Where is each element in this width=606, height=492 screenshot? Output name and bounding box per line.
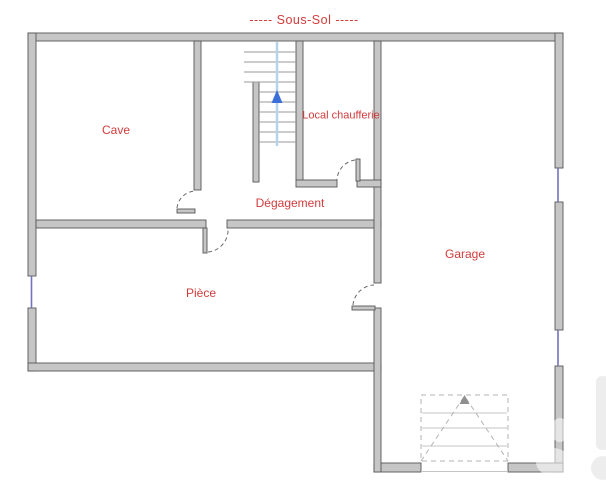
wall-corridor-bottom xyxy=(227,220,381,228)
room-label-degagement: Dégagement xyxy=(256,197,325,209)
floorplan-sous-sol: ----- Sous-Sol ----- Cave Local chauffer… xyxy=(0,0,606,492)
room-label-garage: Garage xyxy=(445,248,485,260)
door-chaufferie xyxy=(337,159,360,181)
wall-stair-side xyxy=(253,82,259,182)
room-label-chaufferie: Local chaufferie xyxy=(302,111,379,122)
room-label-cave: Cave xyxy=(102,124,130,136)
wall-bottom-left xyxy=(28,363,381,371)
door-leaf-chaufferie xyxy=(356,159,360,181)
wall-cave-bottom xyxy=(36,220,206,228)
door-arc-cave xyxy=(177,191,196,208)
garage-sectional-door xyxy=(421,395,508,472)
wall-left-lower xyxy=(28,308,36,371)
door-arc-piece-garage xyxy=(353,285,374,305)
watermark xyxy=(536,376,606,480)
door-leaf-cave xyxy=(177,209,195,213)
door-leaf-piece-garage xyxy=(352,306,375,310)
garage-door-apex-icon xyxy=(460,395,470,404)
door-piece-garage xyxy=(352,285,375,310)
door-leaf-degagement-piece xyxy=(203,228,207,253)
wall-top xyxy=(28,33,563,41)
door-arc-chaufferie xyxy=(337,160,355,180)
wall-garage-west-lower xyxy=(374,308,381,472)
room-label-piece: Pièce xyxy=(186,287,216,299)
door-arc-degagement-piece xyxy=(208,229,228,252)
floorplan-drawing xyxy=(0,0,606,492)
wall-left-upper xyxy=(28,33,36,276)
floor-title: ----- Sous-Sol ----- xyxy=(249,14,358,27)
inner-walls xyxy=(36,41,381,472)
wall-garage-west-upper xyxy=(374,41,381,283)
door-degagement-piece xyxy=(203,228,228,253)
wall-chaufferie-bottom-left xyxy=(296,180,337,187)
staircase xyxy=(244,42,296,146)
door-cave xyxy=(177,191,196,213)
wall-cave-right xyxy=(194,41,201,190)
wall-right-middle xyxy=(555,202,563,330)
wall-chaufferie-bottom-right xyxy=(357,180,381,187)
wall-right-upper xyxy=(555,33,563,168)
